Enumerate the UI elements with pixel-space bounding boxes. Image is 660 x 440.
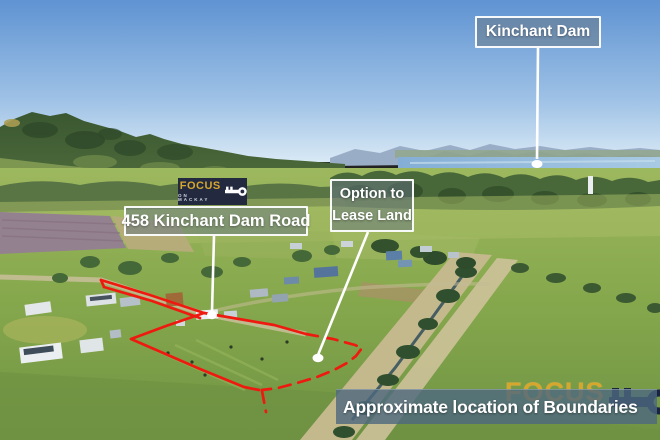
lease-marker-dot xyxy=(313,354,324,362)
dam-label: Kinchant Dam xyxy=(475,16,601,48)
brand-logo-text: FOCUS ON MACKAY xyxy=(178,181,222,203)
disclaimer-bar: Approximate location of Boundaries xyxy=(336,389,657,424)
lease-label: Option to Lease Land xyxy=(330,179,414,232)
dam-label-text: Kinchant Dam xyxy=(486,23,590,41)
disclaimer-text: Approximate location of Boundaries xyxy=(343,397,638,418)
address-marker-dot xyxy=(207,311,217,319)
lease-label-line1: Option to xyxy=(340,184,404,206)
address-label: 458 Kinchant Dam Road xyxy=(124,206,308,236)
dam-leader-line xyxy=(537,48,538,159)
key-icon xyxy=(225,185,247,198)
water-tower xyxy=(588,176,593,194)
brand-tagline: ON MACKAY xyxy=(178,194,222,203)
brand-name: FOCUS xyxy=(180,181,221,192)
dam-marker-dot xyxy=(532,160,543,168)
brand-logo: FOCUS ON MACKAY xyxy=(178,178,247,205)
address-label-text: 458 Kinchant Dam Road xyxy=(122,212,311,231)
lease-label-line2: Lease Land xyxy=(332,206,412,228)
listing-photo: Kinchant Dam 458 Kinchant Dam Road Optio… xyxy=(0,0,660,440)
